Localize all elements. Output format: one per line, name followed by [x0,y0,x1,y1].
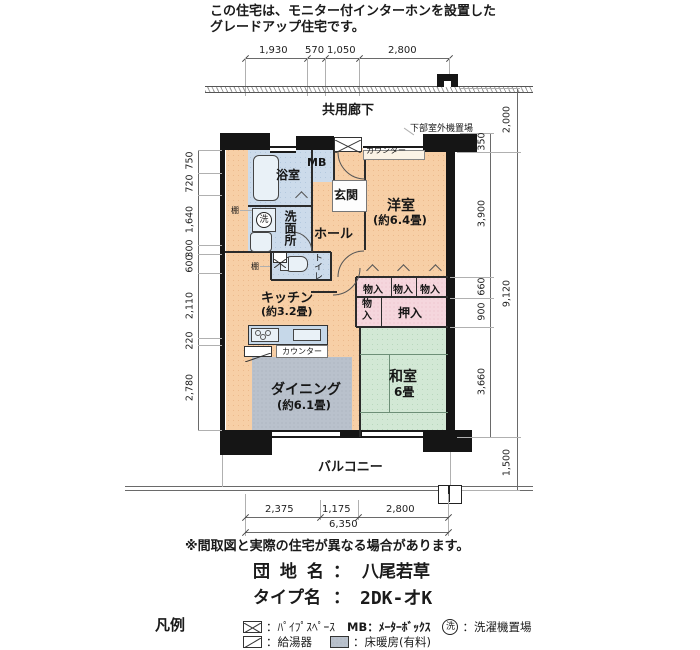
left-dim-line [198,150,199,430]
entrance-label: 玄関 [334,186,358,203]
shelf-leader [240,210,252,211]
legend-mb-label: MB：ﾒｰﾀｰﾎﾞｯｸｽ [347,619,430,635]
right-dim-line-inner [490,133,491,437]
dining-size: (約6.1畳) [277,397,331,413]
partition [311,291,337,293]
burner [265,330,271,336]
kitchen-size: (約3.2畳) [261,303,313,319]
dim-ext [462,490,520,491]
legend-heater-label: ：給湯器 [266,634,312,650]
washing-machine-icon: 洗 [256,212,272,228]
hall-label: ホール [314,223,353,242]
storage-label: 物入 [362,299,374,323]
dim-ext [460,88,520,89]
dim-ext [198,254,222,255]
right-dim-line-outer [517,88,518,490]
partition [248,205,312,207]
legend-row-1: ：ﾊﾟｲﾌﾟｽﾍﾟｰｽ MB：ﾒｰﾀｰﾎﾞｯｸｽ 洗 ：洗濯機置場 [243,619,531,635]
shelf-label: 棚 [231,205,239,216]
type-colon: ： [333,588,350,609]
shelf-label: 棚 [251,261,259,272]
legend-row-2: ：給湯器 ：床暖房(有料) [243,634,431,650]
balcony-edge-line [125,486,533,487]
dim-ext [198,345,222,346]
balcony-side [450,452,451,487]
right-dim-total-9120: 9,120 [502,272,513,316]
wall-right [446,150,455,437]
wall-left [220,148,225,437]
dim-ext [457,437,521,438]
type-name-label: タイプ名 [253,588,321,609]
partition [330,252,332,281]
balcony-label: バルコニー [318,460,383,476]
corridor-pillar-notch [444,81,451,87]
right-dim-2000: 2,000 [502,98,513,142]
kitchen-counter-label: カウンター [276,345,328,358]
water-heater-icon [244,346,272,357]
legend-laundry-label: ：洗濯機置場 [462,619,531,635]
partition [356,326,448,328]
corridor-label: 共用廊下 [322,103,374,119]
shelf-leader [260,266,270,267]
estate-colon: ： [333,562,350,583]
estate-name-label: 団 地 名 [253,562,326,583]
storage-label: 物入 [420,281,440,296]
wall-pillar-bottomleft [220,430,272,455]
legend-floorheat-label: ：床暖房(有料) [353,634,431,650]
pipe-space-icon [273,252,287,263]
kitchen-sink [293,329,321,341]
floor-heating-legend-icon [330,636,349,648]
wall-pillar-topleft [220,133,270,150]
dim-ext [198,173,222,174]
bottom-dim-total-6350: 6,350 [329,519,358,530]
top-dim-label-1930: 1,930 [259,45,288,56]
tatami-line [360,412,448,413]
toilet-label: トイレ [311,253,324,280]
washitsu-size: 6畳 [394,383,414,400]
right-dim-1500: 1,500 [502,441,513,485]
right-dim-900: 900 [477,290,488,334]
pipe-space-icon [334,137,362,152]
wall-top-mid [296,136,334,150]
partition [355,277,357,327]
top-dim-line [245,58,449,59]
left-dim-220: 220 [185,319,196,363]
oshiire-label: 押入 [398,304,422,321]
right-dim-3660: 3,660 [477,360,488,404]
partition [356,296,448,298]
dim-ext [198,338,222,339]
wall-pillar-bottomright [423,430,472,452]
type-name-value: 2DK-オK [360,588,432,611]
header-note-line2: グレードアップ住宅です。 [210,20,365,36]
balcony-divider [438,485,462,504]
legend-pipe-label: ：ﾊﾟｲﾌﾟｽﾍﾟｰｽ [266,619,335,635]
burner [260,334,266,340]
pipe-space-legend-icon [243,621,262,633]
top-dim-label-1050: 1,050 [327,45,356,56]
estate-name-value: 八尾若草 [362,562,430,583]
dim-ext [198,430,222,431]
partition [270,252,272,280]
washroom-label: 洗面所 [282,210,299,246]
balcony-door-dining [272,430,340,438]
dining-label: ダイニング [271,379,341,399]
bottom-dim-1175: 1,175 [322,504,351,515]
dim-ext [198,150,222,151]
closet-divider [391,277,392,297]
meterbox-label: MB [307,156,326,169]
bottom-dim-2800: 2,800 [386,504,415,515]
dim-ext [198,195,222,196]
disclaimer: ※間取図と実際の住宅が異なる場合があります。 [185,539,469,555]
bath-label: 浴室 [276,166,300,183]
partition [359,327,361,437]
storage-label: 物入 [393,281,413,296]
western-room-size: (約6.4畳) [373,212,427,228]
bottom-dim-line [245,517,448,518]
water-heater-legend-icon [243,636,262,648]
dim-ext [457,152,521,153]
closet-divider [381,297,382,327]
dim-ext [198,245,222,246]
top-dim-label-570: 570 [305,45,324,56]
left-dim-600: 600 [185,242,196,286]
closet-divider [416,277,417,297]
tatami-line [360,354,448,355]
storage-label: 物入 [363,281,383,296]
legend-title: 凡例 [155,616,185,635]
bottom-total-line [245,532,448,533]
balcony-door-washitsu [362,430,423,438]
left-dim-2780: 2,780 [185,366,196,410]
header-note-line1: この住宅は、モニター付インターホンを設置した [210,4,496,20]
washbasin [250,232,272,252]
balcony-side [222,455,223,487]
top-dim-label-2800: 2,800 [388,45,417,56]
bottom-dim-2375: 2,375 [265,504,294,515]
bath-window [270,146,296,153]
right-dim-350: 350 [477,120,488,164]
partition [333,150,335,182]
right-dim-3900: 3,900 [477,192,488,236]
laundry-legend-icon: 洗 [442,619,458,635]
dim-ext [198,273,222,274]
counter-top-label: カウンター [366,145,406,156]
floorplan-page: この住宅は、モニター付インターホンを設置した グレードアップ住宅です。 1,93… [0,0,700,650]
